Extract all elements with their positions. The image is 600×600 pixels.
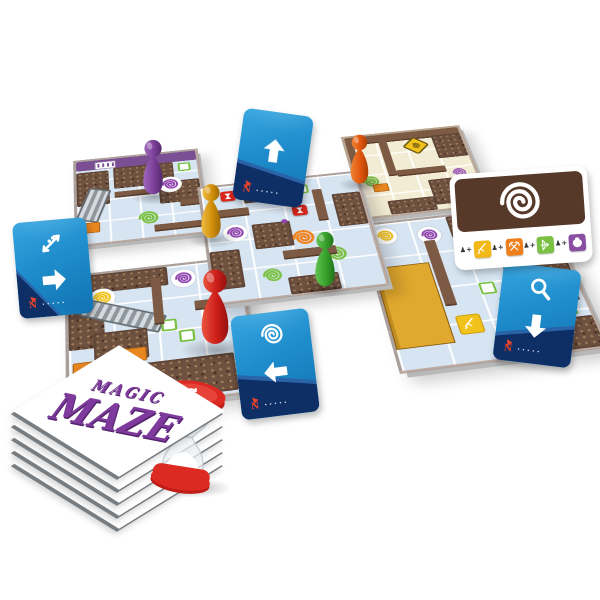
spell-card-brown-panel [454, 171, 585, 233]
compass-north-mark: N [250, 395, 260, 412]
pawn-red [193, 268, 237, 348]
crowd-area [387, 196, 438, 214]
pawn-gold-figure [196, 183, 226, 241]
pawn-orange-figure [346, 133, 373, 187]
sword-icon [475, 242, 489, 256]
compass-letter: N [503, 344, 512, 354]
pawn-red-figure [193, 268, 237, 348]
spell-item-bow: ♟+ [523, 235, 555, 254]
compass-letter: N [251, 402, 260, 412]
magnifier-icon [525, 273, 555, 303]
spell-item-sword: ♟+ [459, 240, 491, 259]
pawn-plus-mark: ♟+ [460, 246, 473, 255]
action-card-search-move-down: N••••• [492, 262, 581, 369]
icon-holder-vortex [256, 320, 286, 350]
spell-card: ♟+♟+♟+♟+ [449, 165, 593, 270]
item-box-bow [537, 235, 555, 253]
pawn-gold [196, 183, 226, 241]
swirl-target [259, 266, 285, 285]
vortex-icon [173, 270, 195, 287]
icon-holder-arrow [519, 309, 552, 342]
arrow-icon [519, 309, 552, 342]
crowd-area [430, 133, 468, 158]
icon-holder-escalator [36, 228, 65, 257]
flask-icon [571, 235, 585, 249]
arrow-icon [257, 134, 291, 168]
pawn-plus-mark: ♟+ [555, 239, 568, 248]
vortex-icon [493, 175, 546, 228]
arrow-icon [38, 263, 71, 296]
vortex-icon [256, 320, 286, 350]
card-navy-content: N••••• [28, 292, 67, 311]
pawn-green [310, 230, 340, 290]
exit-chip [177, 162, 190, 171]
compass-north-mark: N [242, 178, 252, 195]
card-icons [13, 226, 92, 298]
action-card-move-up: N••••• [232, 108, 314, 209]
logo-line-maze: MAZE [43, 384, 187, 451]
item-box-sword [473, 240, 491, 258]
compass-letter: N [29, 302, 38, 312]
pawn-orange [346, 133, 373, 187]
arrow-icon [259, 356, 292, 389]
crowd-area [251, 221, 295, 250]
spell-item-axes: ♟+ [491, 237, 523, 256]
card-icons [231, 317, 316, 392]
action-card-vortex-move-left: N••••• [230, 308, 320, 421]
card-icons [495, 270, 580, 345]
crowd-area [332, 191, 369, 226]
vortex-icon [374, 228, 397, 243]
axes-icon [507, 240, 521, 254]
escalator-icon [36, 228, 65, 257]
logo-line-magic: MAGIC [89, 376, 169, 407]
wall-segment [396, 165, 447, 176]
pawn-plus-mark: ♟+ [523, 241, 536, 250]
icon-holder-arrow [259, 356, 292, 389]
bow-icon [539, 237, 553, 251]
wall-segment [378, 141, 398, 176]
action-card-escalator-move-right: N••••• [12, 217, 94, 319]
icon-holder-magnifier [525, 273, 555, 303]
exit-chip [477, 281, 497, 294]
pawn-green-figure [310, 230, 340, 290]
sword-icon [460, 317, 480, 331]
vortex-icon [259, 266, 285, 285]
magic-maze-product-photo: N•••••N•••••N•••••N••••• ♟+♟+♟+♟+ MAGICM… [0, 0, 600, 600]
vortex-icon [408, 141, 422, 150]
icon-holder-arrow [38, 263, 71, 296]
item-box-flask [569, 233, 587, 251]
pawn-plus-mark: ♟+ [491, 243, 504, 252]
item-square-sword [455, 313, 486, 335]
pawn-purple-figure [138, 138, 168, 198]
wall-segment [311, 189, 328, 221]
item-box-axes [505, 237, 523, 255]
compass-north-mark: N [503, 337, 513, 354]
icon-holder-arrow [257, 134, 291, 168]
compass-north-mark: N [28, 295, 38, 312]
pawn-purple [138, 138, 168, 198]
spell-item-flask: ♟+ [554, 233, 586, 252]
